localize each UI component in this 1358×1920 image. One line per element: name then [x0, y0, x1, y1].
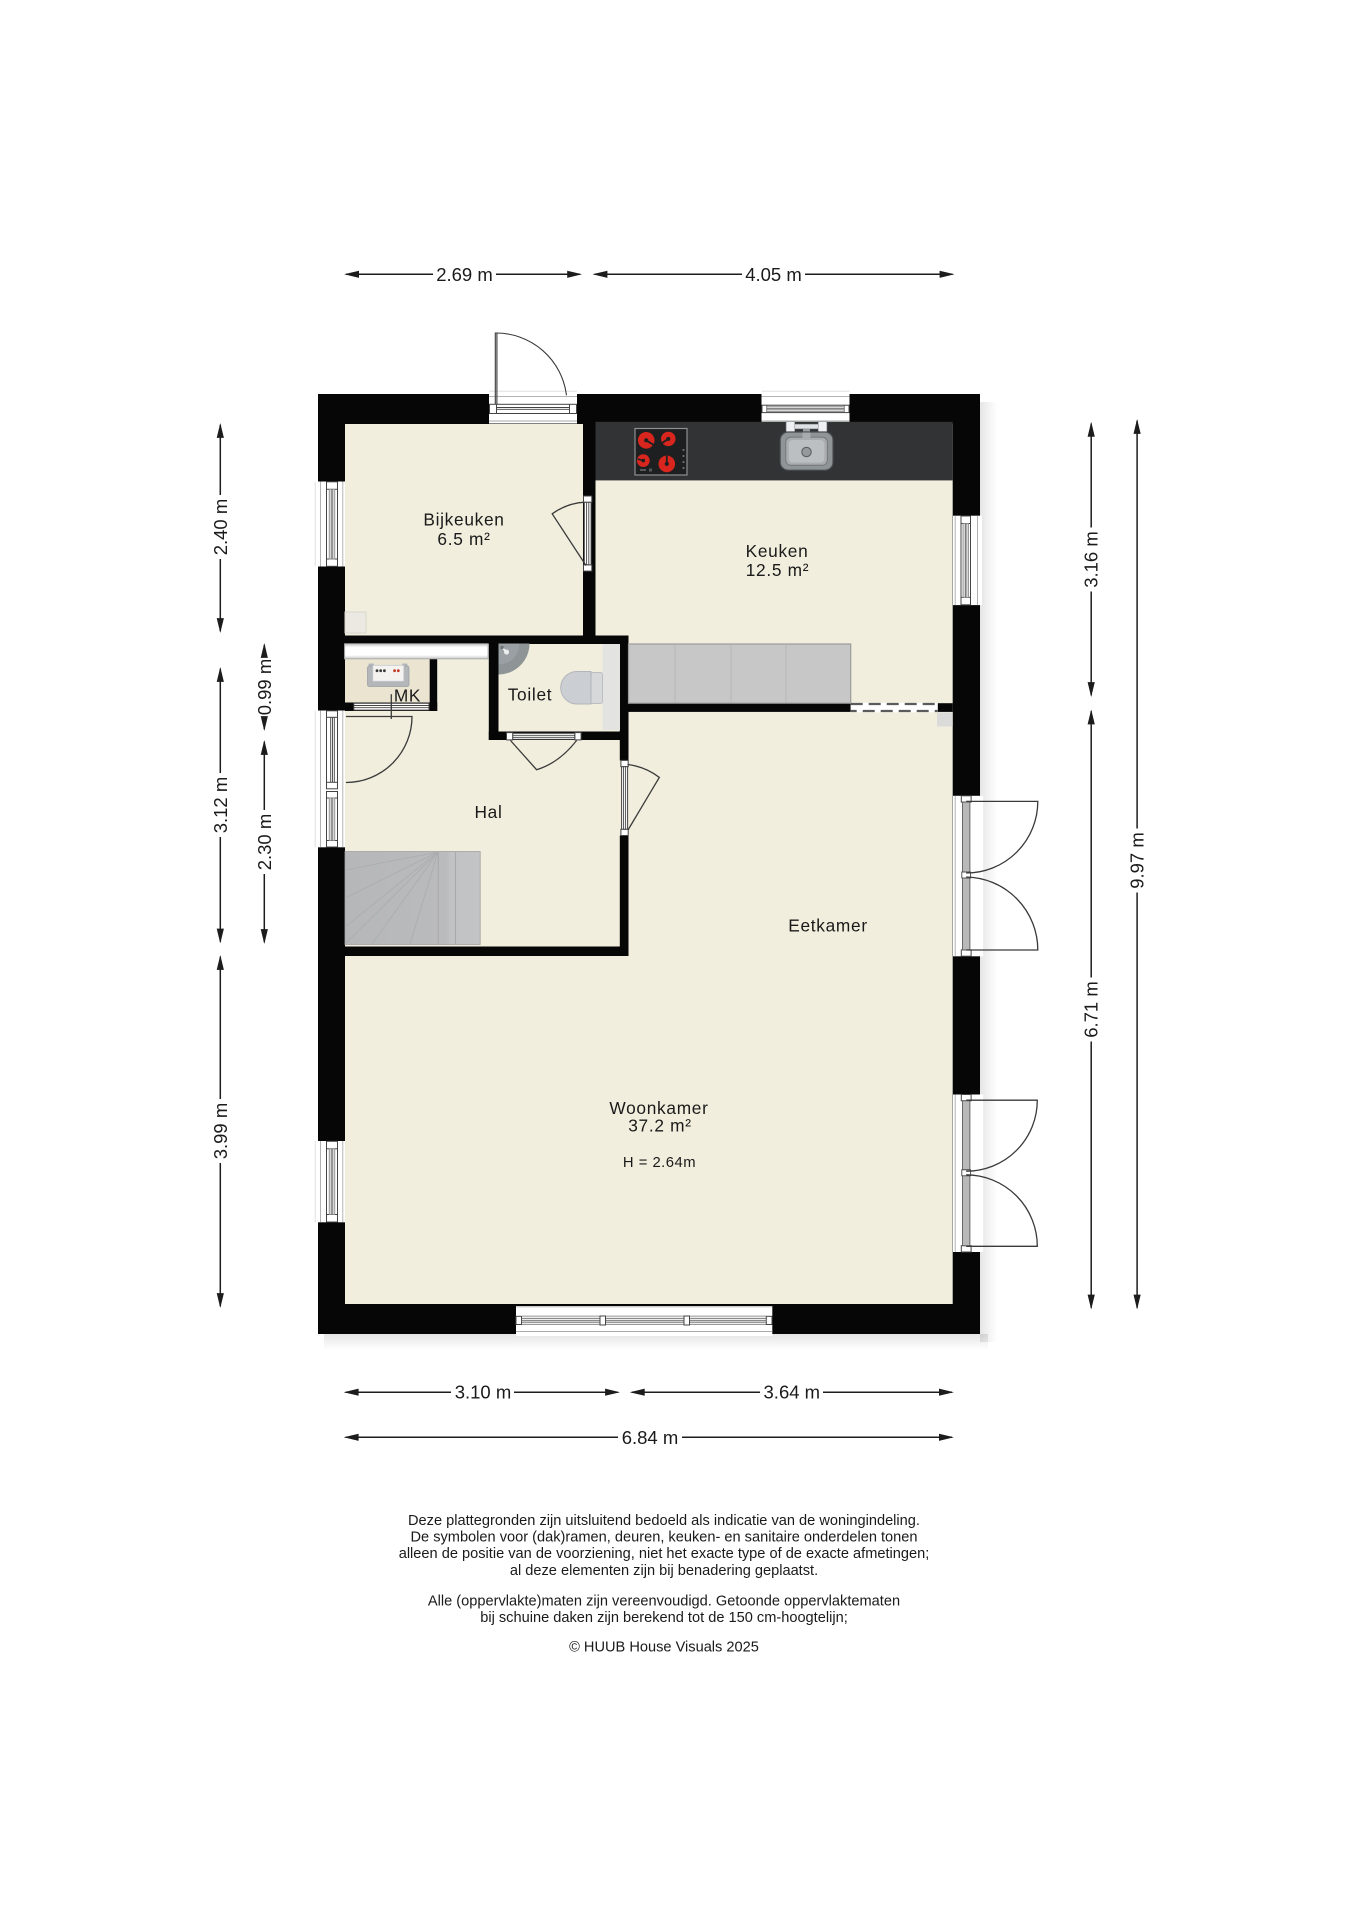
svg-text:2.30 m: 2.30 m [254, 814, 275, 871]
svg-text:3.99 m: 3.99 m [210, 1103, 231, 1160]
svg-text:al deze elementen zijn bij ben: al deze elementen zijn bij benadering ge… [510, 1563, 818, 1579]
svg-text:0.99 m: 0.99 m [254, 659, 275, 716]
svg-text:12.5 m²: 12.5 m² [746, 560, 810, 580]
svg-text:3.10 m: 3.10 m [455, 1382, 512, 1403]
svg-text:alleen de positie van de voorz: alleen de positie van de voorziening, ni… [399, 1546, 930, 1562]
svg-text:3.16 m: 3.16 m [1081, 531, 1102, 588]
svg-text:Toilet: Toilet [508, 684, 553, 704]
svg-text:De symbolen voor (dak)ramen, d: De symbolen voor (dak)ramen, deuren, keu… [410, 1530, 917, 1546]
svg-text:H = 2.64m: H = 2.64m [623, 1155, 696, 1171]
svg-text:37.2 m²: 37.2 m² [628, 1116, 692, 1136]
svg-text:bij schuine daken zijn bereken: bij schuine daken zijn berekend tot de 1… [480, 1610, 848, 1626]
svg-text:Alle (oppervlakte)maten zijn v: Alle (oppervlakte)maten zijn vereenvoudi… [428, 1594, 900, 1610]
svg-text:2.40 m: 2.40 m [210, 499, 231, 556]
svg-text:9.97 m: 9.97 m [1127, 832, 1148, 889]
svg-text:Bijkeuken: Bijkeuken [423, 510, 504, 530]
svg-text:6.71 m: 6.71 m [1081, 981, 1102, 1038]
svg-text:Deze plattegronden zijn uitslu: Deze plattegronden zijn uitsluitend bedo… [408, 1513, 920, 1529]
svg-text:Eetkamer: Eetkamer [788, 915, 868, 935]
svg-text:4.05 m: 4.05 m [745, 264, 802, 285]
svg-text:3.12 m: 3.12 m [210, 777, 231, 834]
svg-text:© HUUB House Visuals 2025: © HUUB House Visuals 2025 [569, 1640, 759, 1656]
svg-text:2.69 m: 2.69 m [436, 264, 493, 285]
svg-text:3.64 m: 3.64 m [764, 1382, 821, 1403]
svg-text:6.84 m: 6.84 m [622, 1427, 679, 1448]
svg-text:6.5 m²: 6.5 m² [437, 529, 490, 549]
svg-text:MK: MK [394, 685, 421, 705]
svg-text:Hal: Hal [474, 802, 502, 822]
svg-text:Keuken: Keuken [746, 541, 809, 561]
